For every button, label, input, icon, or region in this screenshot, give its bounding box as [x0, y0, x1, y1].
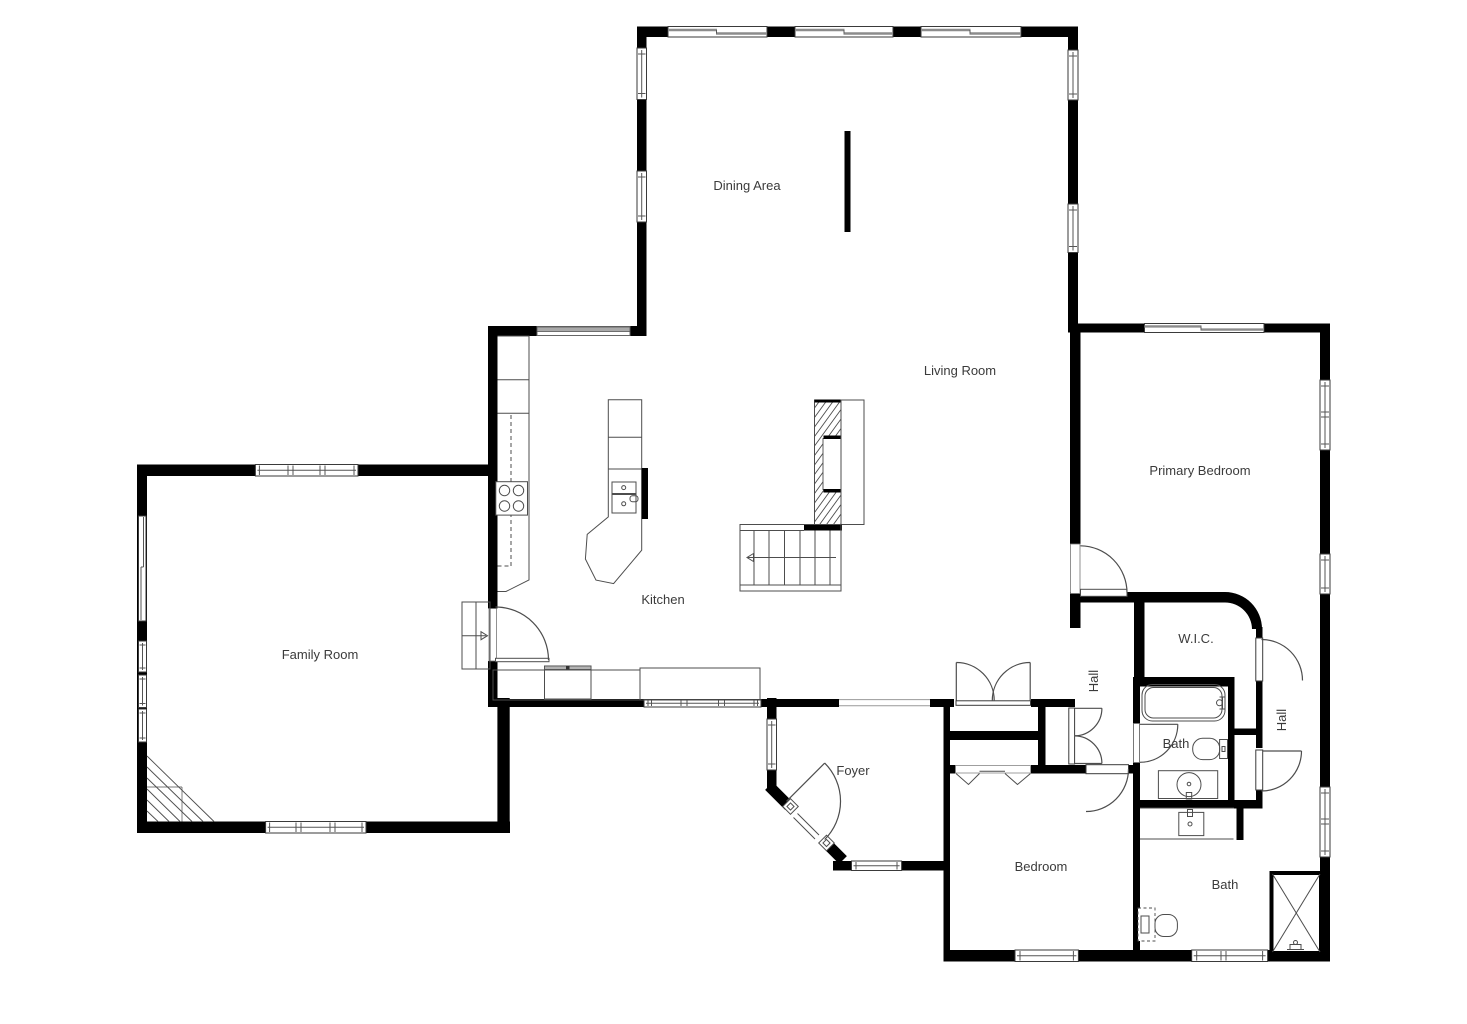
svg-text:Dining Area: Dining Area [713, 178, 781, 193]
svg-text:Hall: Hall [1274, 709, 1289, 732]
svg-text:Primary Bedroom: Primary Bedroom [1149, 463, 1250, 478]
svg-text:Kitchen: Kitchen [641, 592, 684, 607]
svg-text:W.I.C.: W.I.C. [1178, 631, 1213, 646]
svg-text:Family Room: Family Room [282, 647, 359, 662]
svg-text:Hall: Hall [1086, 670, 1101, 693]
svg-text:Bath: Bath [1212, 877, 1239, 892]
svg-text:Living Room: Living Room [924, 363, 996, 378]
svg-text:Bedroom: Bedroom [1015, 859, 1068, 874]
svg-text:Bath: Bath [1163, 736, 1190, 751]
svg-text:Foyer: Foyer [836, 763, 870, 778]
